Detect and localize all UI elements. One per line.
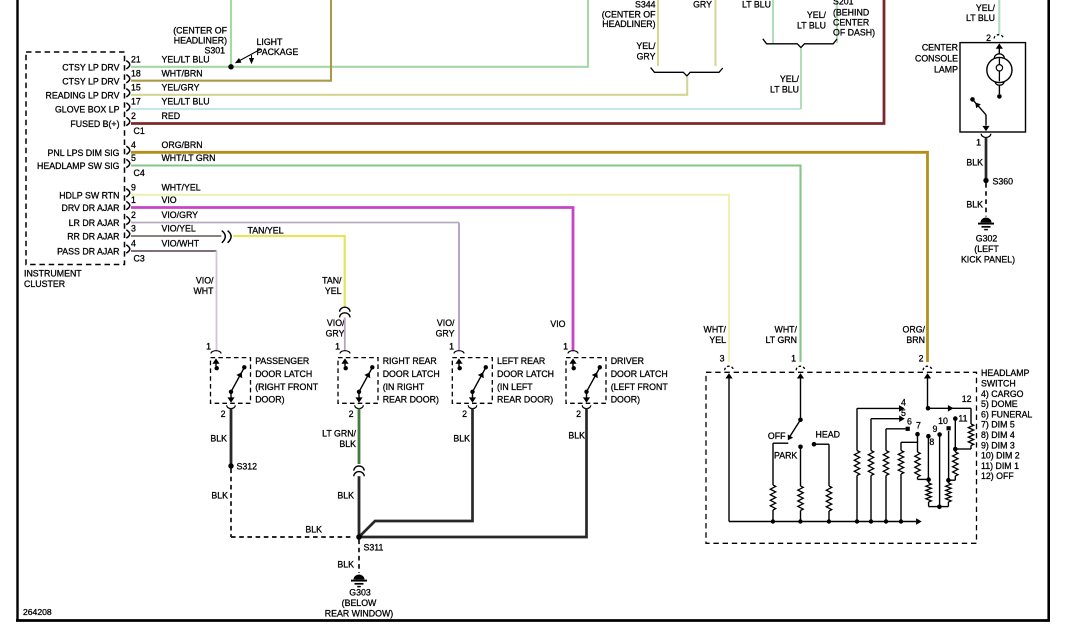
svg-text:9) DIM 3: 9) DIM 3 xyxy=(981,440,1015,450)
svg-text:PNL LPS DIM SIG: PNL LPS DIM SIG xyxy=(47,148,119,158)
svg-text:(CENTER OF: (CENTER OF xyxy=(602,9,656,19)
svg-text:PASSENGER: PASSENGER xyxy=(255,356,309,366)
svg-text:YEL/LT BLU: YEL/LT BLU xyxy=(162,55,210,65)
svg-text:8: 8 xyxy=(929,437,934,447)
svg-text:BLK: BLK xyxy=(966,200,983,210)
svg-text:1: 1 xyxy=(563,342,568,352)
svg-text:YEL/: YEL/ xyxy=(807,10,827,20)
svg-text:YEL/: YEL/ xyxy=(976,3,996,13)
svg-text:WHT/LT GRN: WHT/LT GRN xyxy=(162,153,216,163)
svg-text:2: 2 xyxy=(462,409,467,419)
svg-text:HEADLINER): HEADLINER) xyxy=(602,19,655,29)
svg-text:HEADLINER): HEADLINER) xyxy=(174,36,227,46)
svg-text:REAR WINDOW): REAR WINDOW) xyxy=(325,609,393,619)
svg-text:(BELOW: (BELOW xyxy=(342,598,377,608)
svg-text:2: 2 xyxy=(986,33,991,43)
svg-text:LT GRN: LT GRN xyxy=(766,335,797,345)
svg-text:12: 12 xyxy=(962,394,972,404)
svg-text:VIO: VIO xyxy=(550,319,565,329)
svg-text:DOOR LATCH: DOOR LATCH xyxy=(383,369,440,379)
svg-text:YEL/GRY: YEL/GRY xyxy=(162,83,200,93)
svg-text:GRY: GRY xyxy=(436,329,455,339)
svg-text:(BEHIND: (BEHIND xyxy=(833,8,869,18)
svg-text:GRY: GRY xyxy=(693,0,712,10)
svg-text:17: 17 xyxy=(131,97,141,107)
svg-text:WHT/BRN: WHT/BRN xyxy=(162,68,203,78)
svg-text:1: 1 xyxy=(131,195,136,205)
svg-text:BLK: BLK xyxy=(568,431,585,441)
svg-text:9: 9 xyxy=(131,183,136,193)
svg-text:YEL: YEL xyxy=(325,286,342,296)
svg-text:BLK: BLK xyxy=(966,158,983,168)
svg-text:C3: C3 xyxy=(134,254,145,264)
svg-text:ORG/BRN: ORG/BRN xyxy=(162,140,203,150)
svg-text:SWITCH: SWITCH xyxy=(981,378,1016,388)
svg-text:WHT/YEL: WHT/YEL xyxy=(162,183,201,193)
svg-text:LEFT REAR: LEFT REAR xyxy=(497,356,545,366)
svg-text:DRIVER: DRIVER xyxy=(611,356,644,366)
svg-text:BLK: BLK xyxy=(337,491,354,501)
svg-text:PARK: PARK xyxy=(774,451,797,461)
svg-text:9: 9 xyxy=(933,424,938,434)
svg-text:RR DR AJAR: RR DR AJAR xyxy=(67,232,119,242)
svg-text:11) DIM 1: 11) DIM 1 xyxy=(981,461,1019,471)
svg-text:READING LP DRV: READING LP DRV xyxy=(46,91,120,101)
svg-text:VIO/YEL: VIO/YEL xyxy=(162,224,196,234)
svg-text:S344: S344 xyxy=(635,0,656,10)
svg-text:2: 2 xyxy=(131,111,136,121)
svg-text:5: 5 xyxy=(901,408,906,418)
svg-text:BLK: BLK xyxy=(339,439,356,449)
svg-text:LAMP: LAMP xyxy=(934,65,958,75)
svg-text:S312: S312 xyxy=(237,462,258,472)
svg-text:GRY: GRY xyxy=(326,329,345,339)
svg-text:VIO/: VIO/ xyxy=(327,318,345,328)
svg-text:1: 1 xyxy=(449,342,454,352)
svg-text:21: 21 xyxy=(131,55,141,65)
svg-text:HEADLAMP: HEADLAMP xyxy=(981,368,1030,378)
svg-text:(RIGHT FRONT: (RIGHT FRONT xyxy=(255,382,319,392)
svg-text:10: 10 xyxy=(938,416,948,426)
svg-text:G303: G303 xyxy=(349,588,371,598)
svg-text:G302: G302 xyxy=(976,234,998,244)
svg-text:CENTER: CENTER xyxy=(833,18,869,28)
svg-text:LIGHT: LIGHT xyxy=(257,37,284,47)
svg-text:CLUSTER: CLUSTER xyxy=(24,279,65,289)
svg-text:12) OFF: 12) OFF xyxy=(981,471,1014,481)
svg-text:LR DR AJAR: LR DR AJAR xyxy=(69,218,120,228)
svg-text:LT BLU: LT BLU xyxy=(797,21,826,31)
svg-text:YEL/: YEL/ xyxy=(780,74,800,84)
svg-text:2: 2 xyxy=(576,409,581,419)
svg-text:HEADLAMP SW SIG: HEADLAMP SW SIG xyxy=(37,161,120,171)
svg-text:LT GRN/: LT GRN/ xyxy=(322,429,356,439)
svg-text:KICK PANEL): KICK PANEL) xyxy=(961,255,1015,265)
svg-text:7) DIM 5: 7) DIM 5 xyxy=(981,420,1015,430)
svg-text:LT BLU: LT BLU xyxy=(770,85,799,95)
svg-text:HDLP SW RTN: HDLP SW RTN xyxy=(59,191,119,201)
svg-text:ORG/: ORG/ xyxy=(903,325,926,335)
svg-text:(LEFT: (LEFT xyxy=(974,244,999,254)
svg-text:DOOR LATCH: DOOR LATCH xyxy=(611,369,668,379)
svg-text:REAR DOOR): REAR DOOR) xyxy=(383,395,439,405)
svg-text:YEL/LT BLU: YEL/LT BLU xyxy=(162,97,210,107)
svg-text:5: 5 xyxy=(131,153,136,163)
svg-text:1: 1 xyxy=(335,342,340,352)
svg-text:RED: RED xyxy=(162,111,181,121)
svg-text:PASS DR AJAR: PASS DR AJAR xyxy=(57,247,119,257)
svg-text:WHT/: WHT/ xyxy=(704,325,727,335)
svg-text:18: 18 xyxy=(131,68,141,78)
svg-text:CONSOLE: CONSOLE xyxy=(915,54,958,64)
svg-text:WHT/: WHT/ xyxy=(775,325,798,335)
svg-text:4) CARGO: 4) CARGO xyxy=(981,389,1024,399)
svg-text:DOOR): DOOR) xyxy=(255,395,284,405)
svg-text:2: 2 xyxy=(919,354,924,364)
svg-text:YEL/: YEL/ xyxy=(636,41,656,51)
svg-text:6) FUNERAL: 6) FUNERAL xyxy=(981,409,1032,419)
svg-text:DOOR LATCH: DOOR LATCH xyxy=(255,369,312,379)
svg-text:BLK: BLK xyxy=(210,434,227,444)
svg-text:BLK: BLK xyxy=(337,559,354,569)
svg-text:DOOR): DOOR) xyxy=(611,395,640,405)
svg-text:GRY: GRY xyxy=(637,51,656,61)
svg-text:OFF: OFF xyxy=(768,431,786,441)
svg-text:FUSED B(+): FUSED B(+) xyxy=(70,119,119,129)
svg-text:4: 4 xyxy=(131,239,136,249)
svg-text:5) DOME: 5) DOME xyxy=(981,399,1018,409)
svg-text:VIO: VIO xyxy=(162,195,177,205)
svg-text:DOOR LATCH: DOOR LATCH xyxy=(497,369,554,379)
svg-text:1: 1 xyxy=(791,354,796,364)
svg-text:S360: S360 xyxy=(993,177,1014,187)
svg-text:8) DIM 4: 8) DIM 4 xyxy=(981,430,1015,440)
svg-text:CTSY LP DRV: CTSY LP DRV xyxy=(62,76,119,86)
svg-text:(LEFT FRONT: (LEFT FRONT xyxy=(611,382,669,392)
svg-text:VIO/WHT: VIO/WHT xyxy=(162,239,200,249)
svg-text:(CENTER OF: (CENTER OF xyxy=(173,26,227,36)
svg-text:S301: S301 xyxy=(204,45,225,55)
svg-text:VIO/: VIO/ xyxy=(196,275,214,285)
svg-text:15: 15 xyxy=(131,83,141,93)
svg-text:GLOVE BOX LP: GLOVE BOX LP xyxy=(55,105,120,115)
svg-text:3: 3 xyxy=(131,224,136,234)
svg-text:2: 2 xyxy=(221,409,226,419)
svg-text:BRN: BRN xyxy=(906,335,925,345)
svg-text:2: 2 xyxy=(131,210,136,220)
svg-text:1: 1 xyxy=(206,342,211,352)
svg-text:264208: 264208 xyxy=(23,607,52,617)
svg-text:S311: S311 xyxy=(364,543,384,553)
svg-text:S201: S201 xyxy=(833,0,854,7)
svg-text:C4: C4 xyxy=(134,168,145,178)
svg-text:LT BLU: LT BLU xyxy=(742,0,771,10)
svg-text:3: 3 xyxy=(720,354,725,364)
svg-text:CENTER: CENTER xyxy=(922,43,958,53)
svg-text:1: 1 xyxy=(976,138,981,148)
svg-text:VIO/GRY: VIO/GRY xyxy=(162,210,199,220)
svg-text:WHT: WHT xyxy=(193,286,214,296)
svg-text:OF DASH): OF DASH) xyxy=(833,28,875,38)
svg-text:C1: C1 xyxy=(134,126,145,136)
svg-text:YEL: YEL xyxy=(709,335,726,345)
svg-text:BLK: BLK xyxy=(305,525,322,535)
svg-text:REAR DOOR): REAR DOOR) xyxy=(497,395,553,405)
svg-text:PACKAGE: PACKAGE xyxy=(257,47,299,57)
svg-text:BLK: BLK xyxy=(211,491,228,501)
svg-text:4: 4 xyxy=(131,140,136,150)
svg-text:10) DIM 2: 10) DIM 2 xyxy=(981,451,1020,461)
svg-text:HEAD: HEAD xyxy=(816,430,840,440)
svg-text:DRV DR AJAR: DRV DR AJAR xyxy=(61,203,119,213)
svg-text:6: 6 xyxy=(907,417,912,427)
svg-text:CTSY LP DRV: CTSY LP DRV xyxy=(62,63,119,73)
svg-text:2: 2 xyxy=(349,409,354,419)
svg-text:11: 11 xyxy=(958,414,967,424)
svg-text:TAN/YEL: TAN/YEL xyxy=(248,226,284,236)
svg-text:(IN RIGHT: (IN RIGHT xyxy=(383,382,425,392)
svg-text:VIO/: VIO/ xyxy=(437,318,455,328)
svg-text:(IN LEFT: (IN LEFT xyxy=(497,382,533,392)
svg-text:INSTRUMENT: INSTRUMENT xyxy=(24,268,82,278)
svg-text:LT BLU: LT BLU xyxy=(966,13,995,23)
svg-text:TAN/: TAN/ xyxy=(322,275,342,285)
svg-text:RIGHT REAR: RIGHT REAR xyxy=(383,356,437,366)
svg-text:BLK: BLK xyxy=(453,433,470,443)
svg-text:4: 4 xyxy=(901,397,906,407)
svg-text:7: 7 xyxy=(916,421,921,431)
